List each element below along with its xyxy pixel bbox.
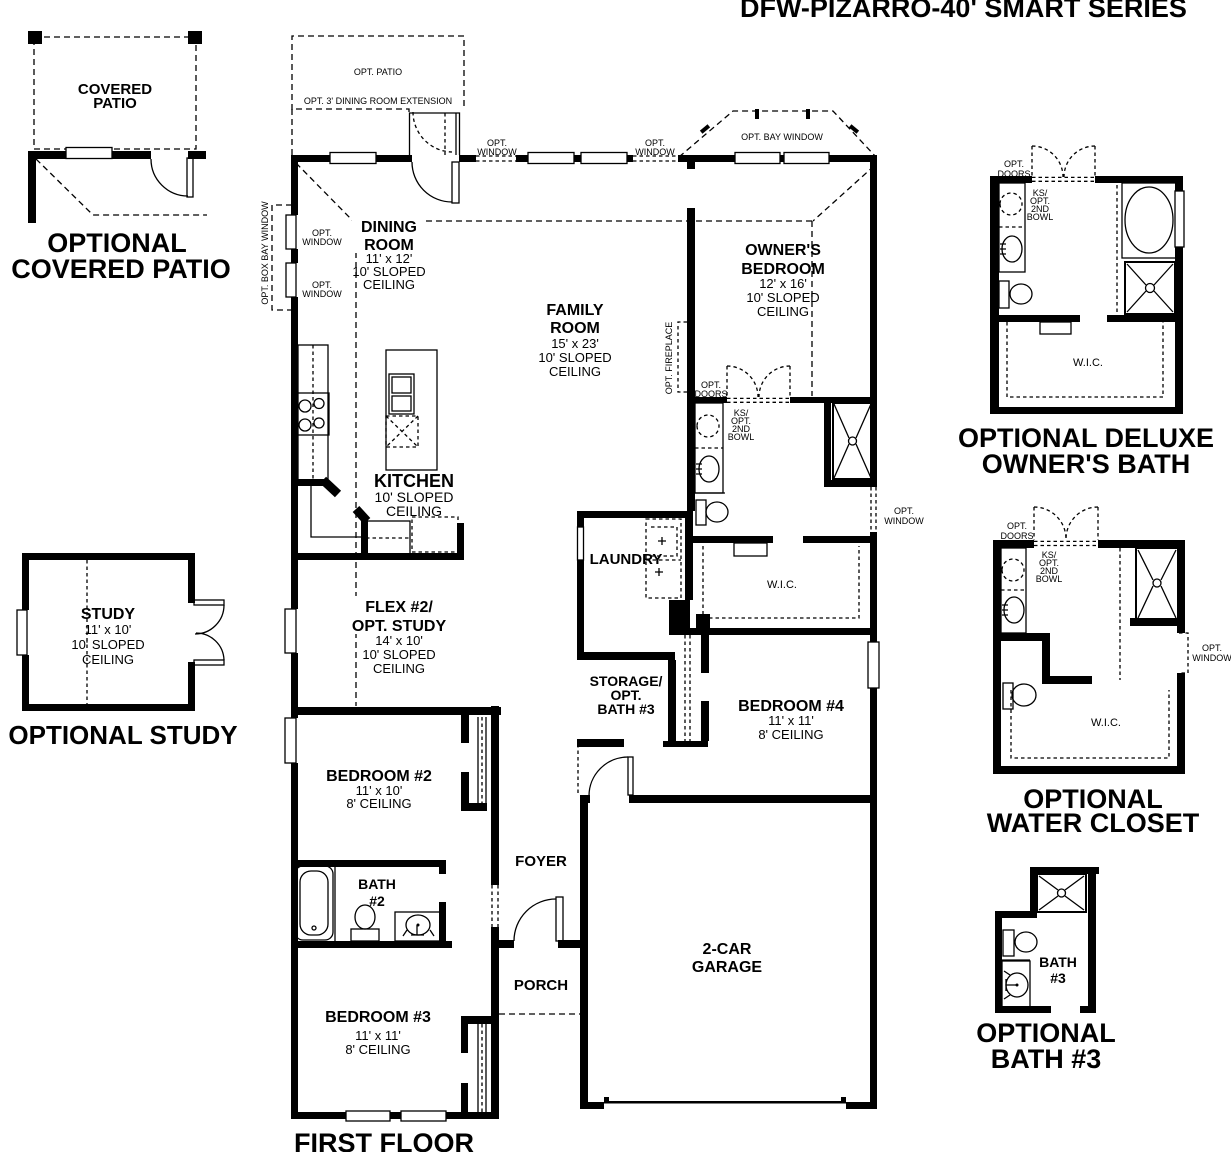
svg-text:#3: #3 (1050, 970, 1066, 986)
svg-text:2-CAR: 2-CAR (703, 941, 752, 958)
svg-text:10' SLOPED: 10' SLOPED (71, 637, 144, 652)
svg-text:BOWL: BOWL (1027, 212, 1054, 222)
svg-text:FAMILY: FAMILY (546, 302, 604, 319)
svg-text:OPT. PATIO: OPT. PATIO (354, 67, 402, 77)
svg-text:CEILING: CEILING (363, 277, 415, 292)
svg-text:W.I.C.: W.I.C. (1073, 357, 1103, 369)
svg-text:OWNER'S: OWNER'S (745, 242, 821, 259)
svg-text:OPT. BAY WINDOW: OPT. BAY WINDOW (741, 132, 823, 142)
svg-text:OPT.: OPT. (894, 506, 914, 516)
svg-text:BOWL: BOWL (728, 432, 755, 442)
svg-text:BOWL: BOWL (1036, 574, 1063, 584)
svg-text:DINING: DINING (361, 219, 417, 236)
svg-text:DFW-PIZARRO-40' SMART SERIES: DFW-PIZARRO-40' SMART SERIES (740, 0, 1187, 23)
svg-text:CEILING: CEILING (757, 304, 809, 319)
svg-text:WATER CLOSET: WATER CLOSET (987, 808, 1200, 838)
svg-text:OPT. FIREPLACE: OPT. FIREPLACE (664, 322, 674, 395)
svg-text:GARAGE: GARAGE (692, 959, 763, 976)
svg-text:DOORS: DOORS (997, 169, 1030, 179)
svg-text:OPT.: OPT. (1007, 521, 1027, 531)
svg-text:BATH: BATH (1039, 954, 1077, 970)
svg-text:WINDOW: WINDOW (477, 147, 517, 157)
svg-text:FOYER: FOYER (515, 853, 567, 870)
svg-text:CEILING: CEILING (386, 503, 442, 519)
svg-text:DOORS: DOORS (1000, 531, 1033, 541)
svg-text:OPT.: OPT. (1004, 159, 1024, 169)
svg-text:BATH #3: BATH #3 (991, 1044, 1102, 1074)
svg-text:15' x 23': 15' x 23' (551, 336, 599, 351)
svg-text:STUDY: STUDY (81, 606, 136, 623)
svg-text:OPT.: OPT. (1202, 643, 1222, 653)
svg-text:WINDOW: WINDOW (302, 289, 342, 299)
svg-text:8' CEILING: 8' CEILING (345, 1042, 410, 1057)
svg-text:COVERED PATIO: COVERED PATIO (11, 254, 231, 284)
svg-text:#2: #2 (369, 893, 385, 909)
svg-text:10' SLOPED: 10' SLOPED (746, 290, 819, 305)
svg-text:12' x 16': 12' x 16' (759, 276, 807, 291)
svg-text:11' x 10': 11' x 10' (85, 622, 132, 637)
svg-text:8' CEILING: 8' CEILING (758, 727, 823, 742)
svg-text:CEILING: CEILING (82, 652, 134, 667)
svg-text:OPTIONAL STUDY: OPTIONAL STUDY (8, 720, 237, 750)
svg-text:ROOM: ROOM (550, 320, 600, 337)
svg-text:OWNER'S BATH: OWNER'S BATH (982, 449, 1190, 479)
svg-text:W.I.C.: W.I.C. (1091, 717, 1121, 729)
svg-text:W.I.C.: W.I.C. (767, 579, 797, 591)
svg-text:OPT. BOX BAY WINDOW: OPT. BOX BAY WINDOW (260, 201, 270, 305)
svg-text:CEILING: CEILING (549, 364, 601, 379)
svg-text:BATH #3: BATH #3 (597, 701, 655, 717)
svg-text:KITCHEN: KITCHEN (374, 471, 454, 491)
svg-text:10' SLOPED: 10' SLOPED (362, 647, 435, 662)
svg-text:8' CEILING: 8' CEILING (346, 796, 411, 811)
svg-text:BEDROOM #3: BEDROOM #3 (325, 1009, 431, 1026)
svg-text:WINDOW: WINDOW (635, 147, 675, 157)
svg-text:LAUNDRY: LAUNDRY (590, 551, 663, 568)
svg-text:BATH: BATH (358, 876, 396, 892)
svg-text:11' x 11': 11' x 11' (768, 713, 814, 728)
svg-text:CEILING: CEILING (373, 661, 425, 676)
svg-text:11' x 11': 11' x 11' (355, 1028, 401, 1043)
svg-text:WINDOW: WINDOW (1192, 653, 1231, 663)
svg-text:14' x 10': 14' x 10' (375, 633, 423, 648)
svg-text:WINDOW: WINDOW (884, 516, 924, 526)
svg-text:10' SLOPED: 10' SLOPED (538, 350, 611, 365)
svg-text:WINDOW: WINDOW (302, 237, 342, 247)
svg-text:FIRST FLOOR: FIRST FLOOR (294, 1128, 474, 1152)
svg-text:OPT. 3' DINING ROOM EXTENSION: OPT. 3' DINING ROOM EXTENSION (304, 96, 452, 106)
svg-text:DOORS: DOORS (694, 389, 727, 399)
svg-text:PATIO: PATIO (93, 95, 137, 112)
svg-text:FLEX #2/: FLEX #2/ (365, 599, 433, 616)
svg-text:PORCH: PORCH (514, 977, 568, 994)
